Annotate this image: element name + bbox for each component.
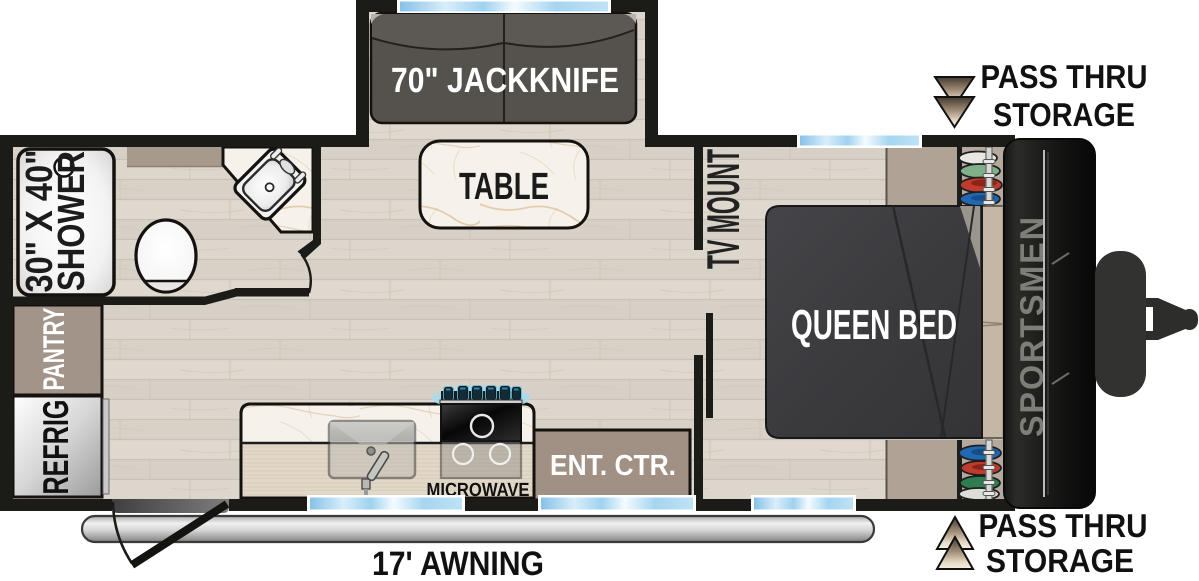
svg-text:SHOWER: SHOWER [51, 151, 93, 291]
svg-text:70" JACKKNIFE: 70" JACKKNIFE [391, 61, 619, 100]
svg-text:SPORTSMEN: SPORTSMEN [1013, 215, 1050, 437]
svg-text:TV MOUNT: TV MOUNT [697, 149, 749, 269]
svg-text:STORAGE: STORAGE [986, 542, 1134, 579]
svg-text:PANTRY: PANTRY [38, 308, 71, 391]
svg-text:TABLE: TABLE [459, 166, 549, 208]
svg-text:ENT. CTR.: ENT. CTR. [550, 450, 676, 482]
svg-text:17' AWNING: 17' AWNING [372, 545, 544, 581]
svg-text:PASS THRU: PASS THRU [979, 507, 1148, 544]
svg-text:QUEEN BED: QUEEN BED [791, 301, 957, 348]
svg-text:REFRIG: REFRIG [35, 400, 76, 495]
svg-text:PASS THRU: PASS THRU [981, 58, 1148, 95]
svg-text:STORAGE: STORAGE [993, 96, 1135, 133]
